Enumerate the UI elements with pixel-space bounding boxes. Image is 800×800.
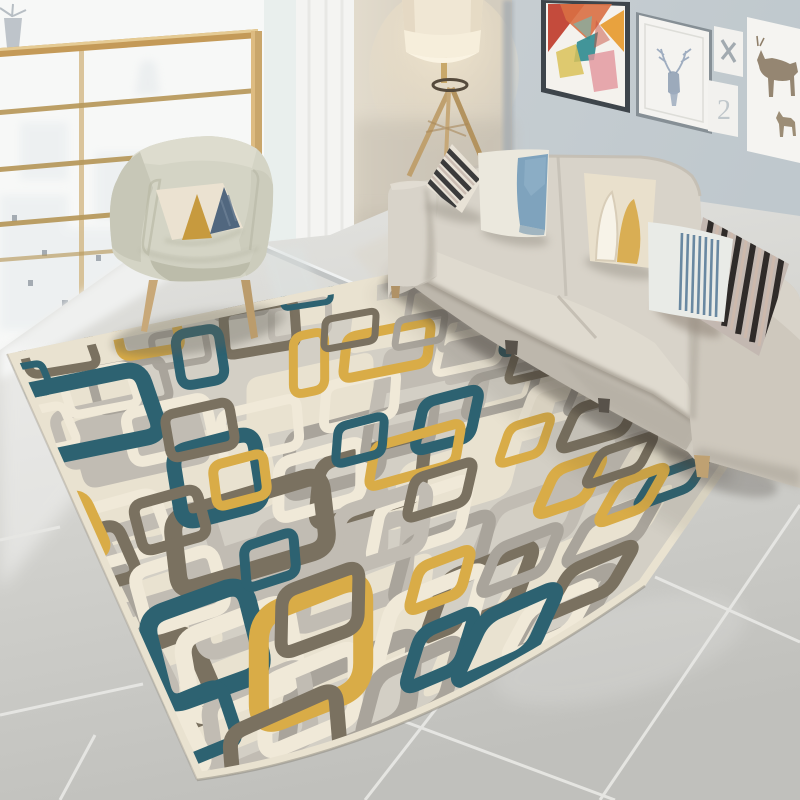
svg-text:2: 2 xyxy=(717,95,731,126)
